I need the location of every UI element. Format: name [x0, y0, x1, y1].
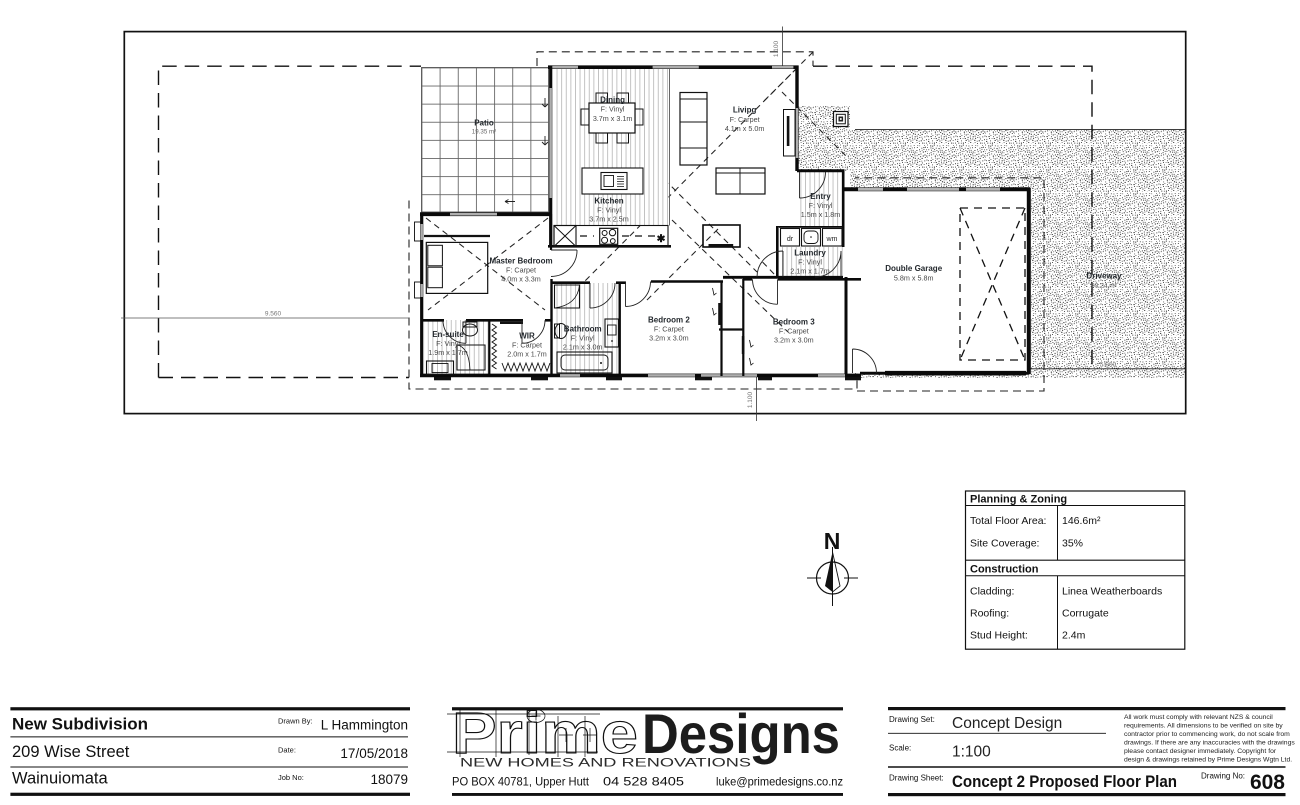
svg-text:1.100: 1.100: [773, 40, 780, 57]
svg-text:Scale:: Scale:: [889, 744, 911, 753]
svg-text:Bedroom 2: Bedroom 2: [648, 316, 690, 325]
svg-text:63.24 m²: 63.24 m²: [1091, 283, 1117, 290]
svg-text:209 Wise Street: 209 Wise Street: [12, 743, 130, 761]
svg-text:1.5m x 1.8m: 1.5m x 1.8m: [801, 210, 841, 219]
svg-text:Driveway: Driveway: [1086, 272, 1122, 281]
svg-text:En-suite: En-suite: [432, 330, 464, 339]
svg-text:requirements. All dimensions t: requirements. All dimensions to be verif…: [1124, 723, 1283, 730]
svg-text:PO BOX 40781, Upper Hutt: PO BOX 40781, Upper Hutt: [452, 775, 590, 789]
svg-text:F: Carpet: F: Carpet: [654, 325, 684, 334]
svg-text:Kitchen: Kitchen: [594, 197, 623, 206]
svg-text:Date:: Date:: [278, 746, 296, 755]
svg-text:Concept 2 Proposed Floor Plan: Concept 2 Proposed Floor Plan: [952, 773, 1177, 791]
svg-text:17/05/2018: 17/05/2018: [340, 746, 408, 761]
svg-text:2.0m x 1.7m: 2.0m x 1.7m: [507, 350, 547, 359]
svg-text:Total Floor Area:: Total Floor Area:: [970, 515, 1046, 527]
svg-text:1:100: 1:100: [952, 744, 991, 761]
svg-text:please contact designer immedi: please contact designer immediately. Cop…: [1124, 748, 1277, 755]
svg-text:3.2m x 3.0m: 3.2m x 3.0m: [774, 335, 814, 344]
svg-text:Bedroom 3: Bedroom 3: [773, 317, 815, 326]
svg-text:608: 608: [1250, 771, 1285, 794]
svg-text:5.000: 5.000: [1100, 362, 1117, 369]
svg-text:Drawing No:: Drawing No:: [1201, 772, 1245, 781]
svg-text:NEW HOMES AND RENOVATIONS: NEW HOMES AND RENOVATIONS: [460, 758, 752, 770]
svg-text:All work must comply with rele: All work must comply with relevant NZS &…: [1124, 714, 1273, 721]
svg-text:4.1m x 5.0m: 4.1m x 5.0m: [725, 124, 765, 133]
svg-text:Planning & Zoning: Planning & Zoning: [970, 494, 1067, 506]
svg-text:New Subdivision: New Subdivision: [12, 715, 148, 734]
svg-text:Drawing Sheet:: Drawing Sheet:: [889, 774, 944, 783]
svg-text:3.7m x 2.5m: 3.7m x 2.5m: [589, 215, 629, 224]
svg-text:dr: dr: [787, 236, 794, 243]
svg-text:Drawn By:: Drawn By:: [278, 717, 313, 726]
svg-text:F: Carpet: F: Carpet: [506, 266, 536, 275]
svg-text:Cladding:: Cladding:: [970, 586, 1014, 598]
svg-text:Corrugate: Corrugate: [1062, 608, 1109, 620]
svg-text:F: Vinyl: F: Vinyl: [601, 105, 625, 114]
svg-text:F: Carpet: F: Carpet: [779, 326, 809, 335]
svg-text:2.1m x 3.0m: 2.1m x 3.0m: [563, 343, 603, 352]
svg-text:35%: 35%: [1062, 538, 1083, 550]
svg-text:✱: ✱: [657, 233, 666, 245]
svg-text:design & drawings retained by: design & drawings retained by Prime Desi…: [1124, 757, 1292, 764]
svg-text:18079: 18079: [370, 772, 408, 787]
svg-text:F: Vinyl: F: Vinyl: [436, 339, 460, 348]
svg-text:146.6m²: 146.6m²: [1062, 515, 1101, 527]
svg-text:Concept Design: Concept Design: [952, 715, 1062, 732]
svg-text:Double Garage: Double Garage: [885, 264, 942, 273]
svg-text:Linea Weatherboards: Linea Weatherboards: [1062, 586, 1162, 598]
svg-text:Entry: Entry: [810, 192, 831, 201]
svg-text:2.4m: 2.4m: [1062, 630, 1086, 642]
svg-text:F: Vinyl: F: Vinyl: [597, 206, 621, 215]
svg-text:Patio: Patio: [474, 119, 494, 128]
svg-text:1.9m x 1.7m: 1.9m x 1.7m: [428, 348, 468, 357]
svg-text:Construction: Construction: [970, 564, 1039, 576]
svg-text:F: Vinyl: F: Vinyl: [798, 258, 822, 267]
svg-text:Site Coverage:: Site Coverage:: [970, 538, 1039, 550]
svg-text:5.8m x 5.8m: 5.8m x 5.8m: [894, 274, 934, 283]
svg-text:L Hammington: L Hammington: [321, 718, 408, 733]
svg-text:Dining: Dining: [600, 96, 625, 105]
svg-text:Wainuiomata: Wainuiomata: [12, 770, 109, 788]
svg-text:luke@primedesigns.co.nz: luke@primedesigns.co.nz: [716, 775, 843, 789]
svg-text:19.35 m²: 19.35 m²: [472, 129, 496, 136]
svg-text:Drawing Set:: Drawing Set:: [889, 715, 935, 724]
svg-text:F: Carpet: F: Carpet: [730, 115, 760, 124]
svg-text:Laundry: Laundry: [794, 249, 826, 258]
svg-text:Roofing:: Roofing:: [970, 608, 1009, 620]
svg-text:drawings. If there are any ina: drawings. If there are any inaccuracies …: [1124, 740, 1295, 747]
svg-text:Job No:: Job No:: [278, 773, 304, 782]
svg-text:contractor prior to commencing: contractor prior to commencing work, do …: [1124, 731, 1290, 738]
svg-text:WIR: WIR: [519, 332, 535, 341]
svg-text:4.0m x 3.3m: 4.0m x 3.3m: [501, 275, 541, 284]
svg-text:Bathroom: Bathroom: [564, 325, 602, 334]
svg-text:Livipg: Livipg: [733, 106, 757, 115]
svg-text:wm: wm: [826, 236, 838, 243]
svg-text:3.2m x 3.0m: 3.2m x 3.0m: [649, 334, 689, 343]
svg-text:2.1m x 1.7m: 2.1m x 1.7m: [790, 267, 830, 276]
svg-text:F: Vinyl: F: Vinyl: [571, 334, 595, 343]
svg-text:F: Carpet: F: Carpet: [512, 341, 542, 350]
svg-text:3.7m x 3.1m: 3.7m x 3.1m: [593, 114, 633, 123]
svg-text:Designs: Designs: [642, 702, 840, 765]
svg-text:04 528 8405: 04 528 8405: [603, 775, 684, 789]
svg-text:Master Bedroom: Master Bedroom: [489, 257, 552, 266]
svg-text:Stud Height:: Stud Height:: [970, 630, 1028, 642]
svg-text:Prime: Prime: [452, 701, 638, 766]
svg-text:9.560: 9.560: [265, 311, 282, 318]
svg-text:F: Vinyl: F: Vinyl: [809, 201, 833, 210]
svg-text:1.100: 1.100: [747, 391, 754, 408]
